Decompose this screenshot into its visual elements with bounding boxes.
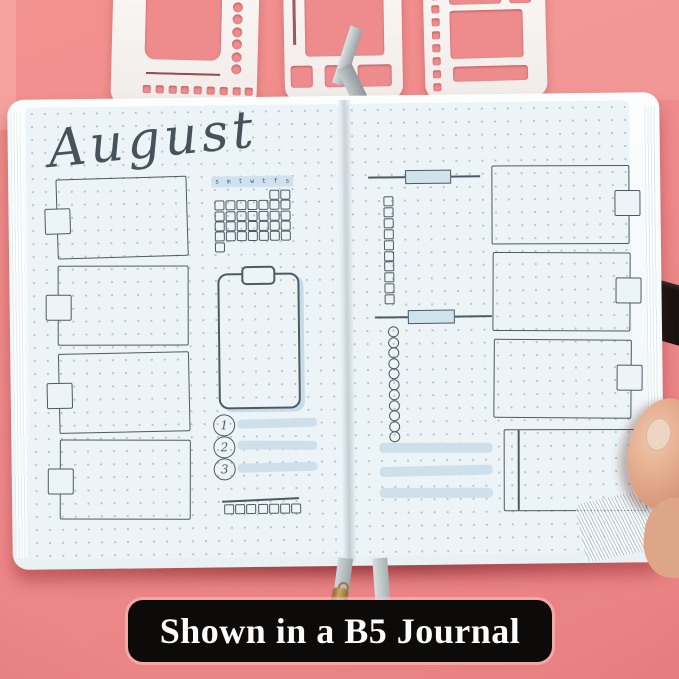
calendar-day-cell	[248, 221, 258, 231]
stencil-cutout-square	[168, 86, 176, 94]
calendar-day-cell	[259, 210, 269, 220]
weekly-box	[491, 165, 629, 244]
calendar-day-letter: s	[211, 176, 223, 187]
calendar-day-cell	[258, 200, 268, 210]
stencil-cutout-square	[194, 86, 202, 94]
calendar-day-cell	[214, 201, 224, 211]
calendar-day-cell	[281, 231, 291, 241]
tracker-square	[246, 504, 256, 514]
stencil-cutout-square	[219, 87, 227, 95]
list-number-circle: 1	[213, 414, 235, 436]
stencil-cutout-square	[291, 66, 313, 88]
calendar-day-cell	[280, 190, 290, 200]
habit-circle	[389, 421, 400, 432]
stencil-cutout-line-slot	[146, 72, 220, 76]
calendar-day-cell	[269, 200, 279, 210]
weekly-box-tab	[44, 208, 71, 235]
calendar-day-cell	[225, 201, 235, 211]
calendar-day-cell	[270, 231, 280, 241]
background-light-strip	[540, 0, 679, 100]
checklist-checkbox	[384, 283, 394, 293]
wide-highlight-bar	[380, 488, 493, 498]
weekly-box	[58, 351, 191, 434]
calendar-day-cell	[237, 211, 247, 221]
weekly-box	[60, 439, 191, 519]
weekly-box-tab	[617, 365, 643, 391]
stencil-cutout-rect	[358, 64, 392, 87]
stencil-cutout-square	[207, 87, 215, 95]
checklist-checkbox	[384, 240, 394, 250]
highlighted-title-box	[405, 170, 451, 185]
stencil-cutout-circle	[233, 2, 243, 12]
tracker-square	[224, 504, 234, 514]
stencil-cutout-large-rect	[449, 9, 523, 59]
weekly-box	[493, 339, 632, 419]
tracker-square	[258, 504, 268, 514]
stencil-cutout-square	[143, 85, 151, 93]
mini-calendar-day-headers: smtwtfs	[211, 176, 293, 188]
calendar-day-cell	[236, 200, 246, 210]
calendar-day-cell	[269, 190, 279, 200]
habit-circle	[388, 368, 399, 379]
checklist-checkbox	[383, 207, 393, 217]
habit-circle	[389, 431, 400, 442]
habit-circle	[388, 326, 399, 337]
habit-circle	[388, 358, 399, 369]
stencil-checklist-template	[422, 0, 547, 100]
calendar-day-cell	[237, 221, 247, 231]
list-number-circle: 3	[214, 458, 236, 480]
stencil-cutout-square	[431, 5, 439, 13]
habit-circle	[389, 400, 400, 411]
clipboard-clip	[241, 266, 275, 285]
stencil-cutout-rounded-rect	[145, 0, 223, 61]
habit-circle	[389, 389, 400, 400]
calendar-day-cell	[226, 211, 236, 221]
stencil-cutout-square	[245, 88, 253, 96]
habit-circle	[389, 410, 400, 421]
stencil-cutout-square	[433, 83, 441, 91]
weekly-box	[55, 176, 188, 260]
weekly-box-tab	[615, 277, 641, 303]
stencil-cutout-rect	[509, 0, 531, 3]
stencil-cutout-circle	[232, 39, 242, 49]
calendar-day-cell	[280, 200, 290, 210]
calendar-day-letter: t	[258, 176, 270, 187]
calendar-day-cell	[281, 210, 291, 220]
tracker-square	[269, 504, 279, 514]
weekly-box	[58, 265, 189, 345]
calendar-day-cell	[270, 221, 280, 231]
calendar-day-cell	[226, 231, 236, 241]
weekly-box-tab	[46, 295, 72, 321]
calendar-day-cell	[237, 231, 247, 241]
stencil-cutout-square	[433, 70, 441, 78]
stencil-cutout-wide-rect	[453, 65, 528, 82]
stencil-rounded-box-template	[110, 0, 259, 108]
clipboard-doodle	[217, 272, 301, 409]
calendar-day-cell	[215, 242, 225, 252]
stencil-cutout-square	[433, 57, 441, 65]
list-highlight-bar	[237, 441, 317, 450]
tracker-square	[280, 504, 290, 514]
stencil-cutout-line-slot	[292, 0, 296, 45]
stencil-cutout-circle	[231, 52, 241, 62]
highlighted-title-box	[408, 310, 455, 325]
calendar-day-cell	[259, 221, 269, 231]
weekly-box	[492, 252, 630, 331]
calendar-day-cell	[215, 221, 225, 231]
stencil-cutout-square	[181, 86, 189, 94]
stencil-cutout-circle	[232, 14, 242, 24]
checklist-checkbox	[384, 218, 394, 228]
stencil-cutout-square	[432, 31, 440, 39]
checklist-checkbox	[384, 262, 394, 272]
calendar-day-cell	[215, 211, 225, 221]
stencil-cutout-circle	[231, 64, 241, 74]
caption-banner: Shown in a B5 Journal	[128, 600, 552, 662]
stencil-cutout-square	[432, 18, 440, 26]
caption-text: Shown in a B5 Journal	[160, 610, 521, 652]
calendar-day-cell	[248, 231, 258, 241]
weekly-box-tab	[614, 190, 640, 216]
calendar-day-letter: t	[235, 176, 247, 187]
stencil-cutout-rect	[449, 0, 501, 5]
b5-journal-open: August smtwtfs 123	[7, 92, 665, 570]
calendar-day-cell	[226, 221, 236, 231]
habit-circle	[388, 347, 399, 358]
stencil-cutout-square	[232, 87, 240, 95]
calendar-day-cell	[259, 231, 269, 241]
weekly-box-tab	[48, 468, 74, 494]
calendar-day-cell	[248, 211, 258, 221]
checklist-checkbox	[384, 229, 394, 239]
calendar-day-cell	[247, 200, 257, 210]
tracker-square	[235, 504, 245, 514]
calendar-day-letter: m	[223, 176, 235, 187]
stencil-cutout-square	[155, 85, 163, 93]
habit-circle	[388, 337, 399, 348]
calendar-day-cell	[281, 220, 291, 230]
product-photo-scene: August smtwtfs 123 Shown in a B5 Journal	[0, 0, 679, 679]
habit-circle	[389, 379, 400, 390]
stencil-cutout-circle	[232, 27, 242, 37]
list-number-circle: 2	[213, 436, 235, 458]
calendar-day-letter: w	[246, 176, 258, 187]
wide-highlight-bar	[379, 443, 492, 453]
calendar-day-letter: f	[270, 176, 282, 187]
calendar-day-cell	[270, 210, 280, 220]
checklist-checkbox	[385, 294, 395, 304]
weekly-box-tab	[47, 383, 74, 410]
checklist-checkbox	[383, 196, 393, 206]
calendar-day-letter: s	[281, 176, 293, 187]
calendar-day-cell	[215, 232, 225, 242]
notes-box-margin-line	[518, 430, 520, 510]
checklist-checkbox	[384, 273, 394, 283]
tracker-square	[291, 503, 301, 513]
checklist-checkbox	[384, 251, 394, 261]
stencil-cutout-square	[432, 44, 440, 52]
